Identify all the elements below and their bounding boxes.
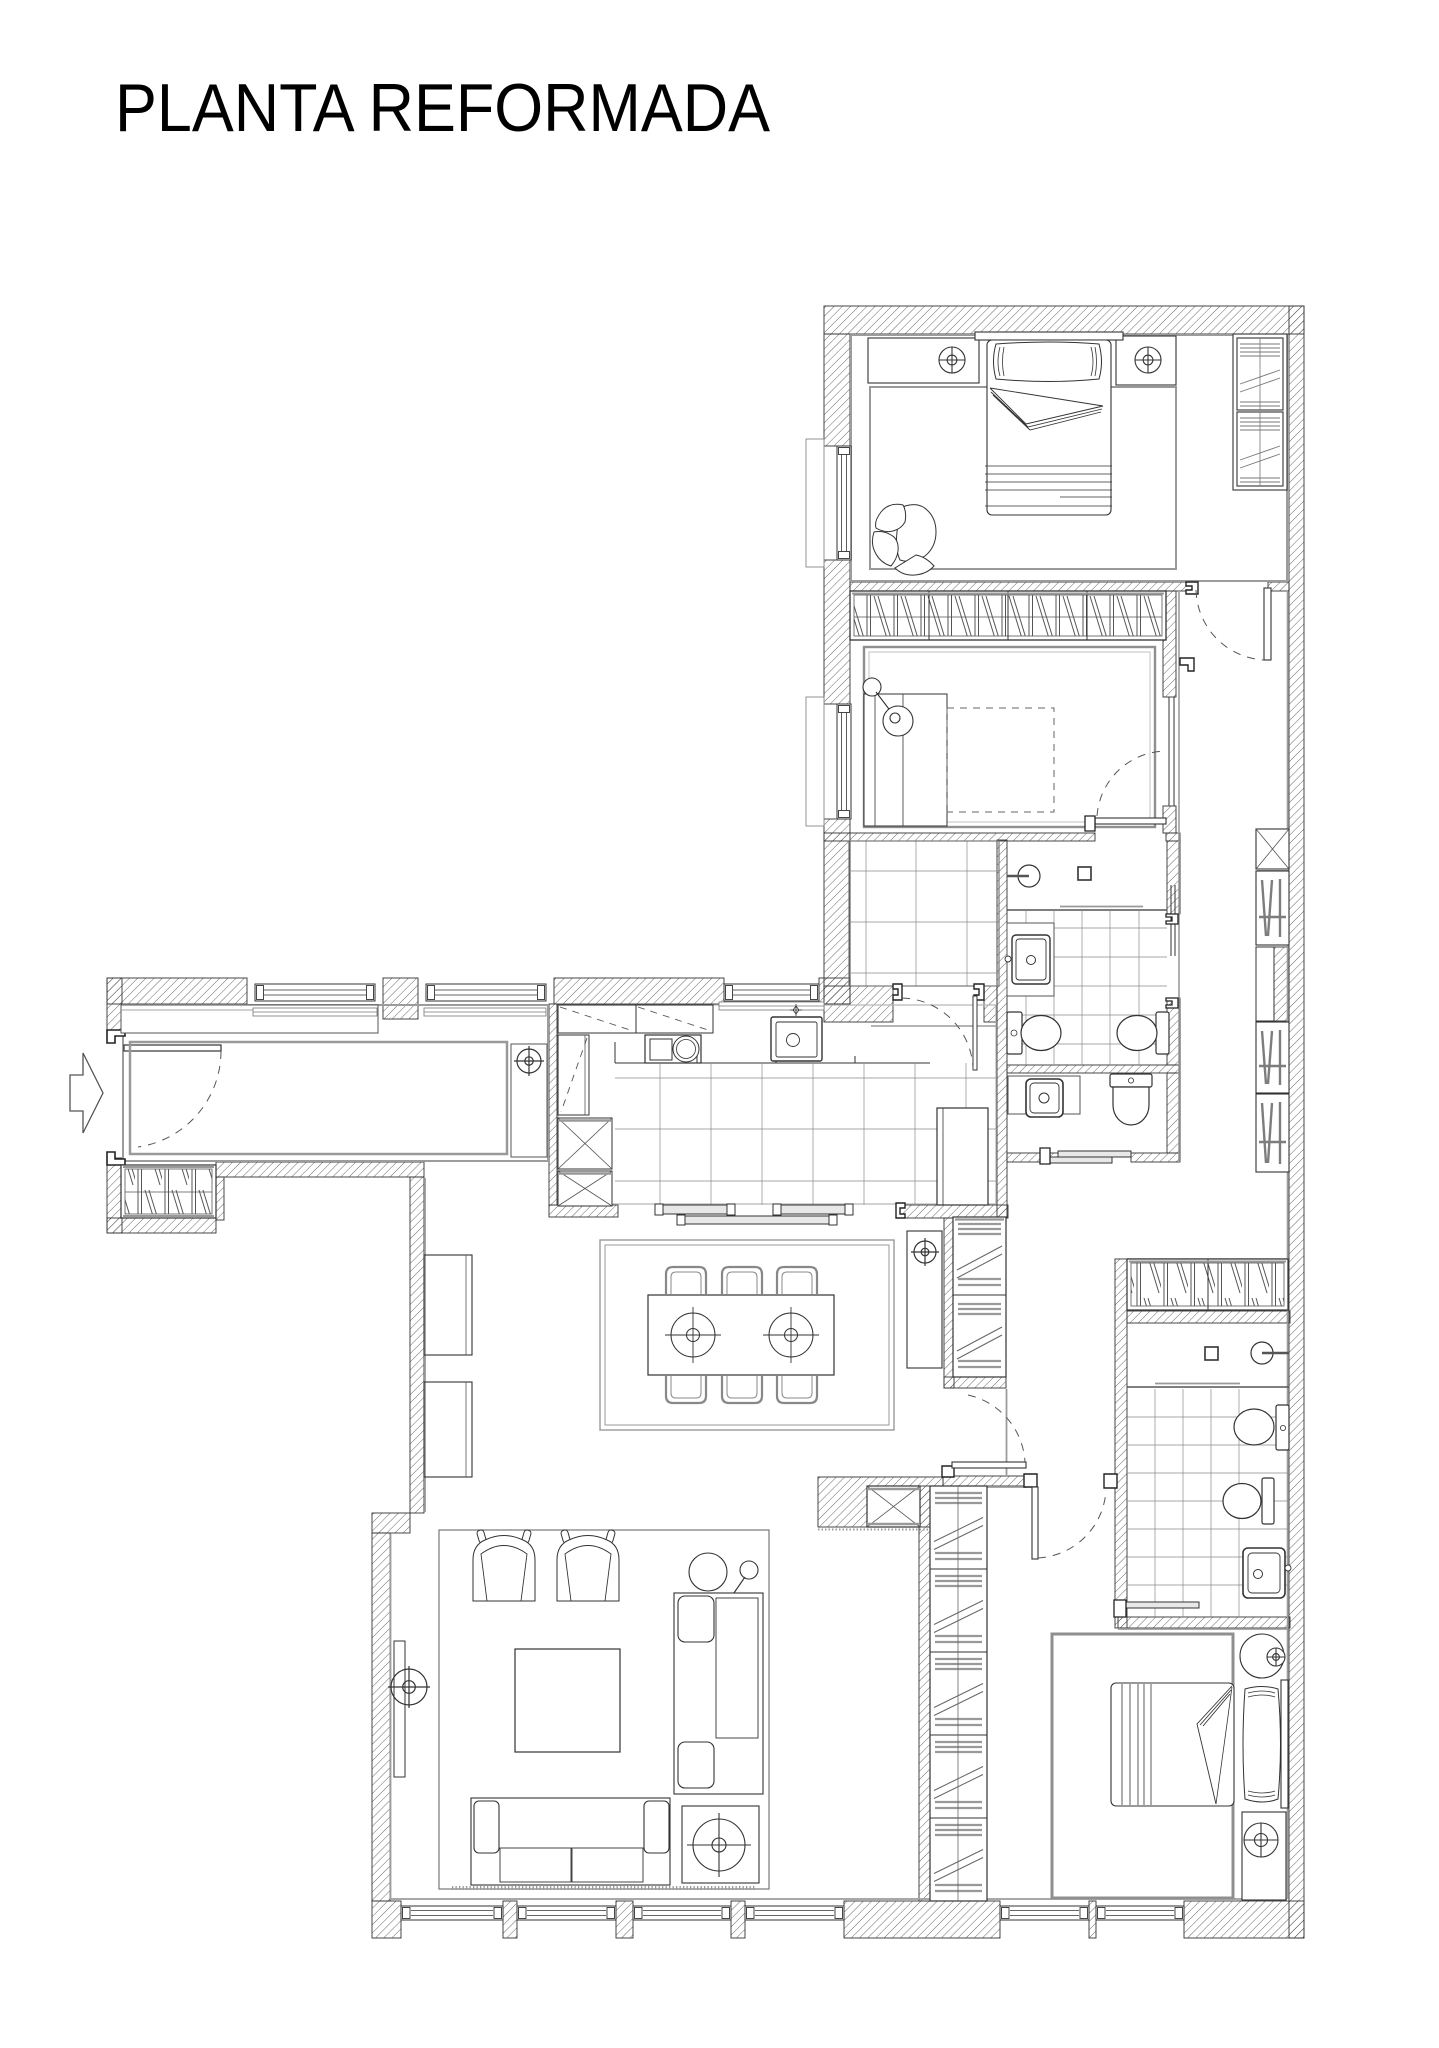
svg-text:PLANTA REFORMADA: PLANTA REFORMADA: [115, 70, 771, 146]
